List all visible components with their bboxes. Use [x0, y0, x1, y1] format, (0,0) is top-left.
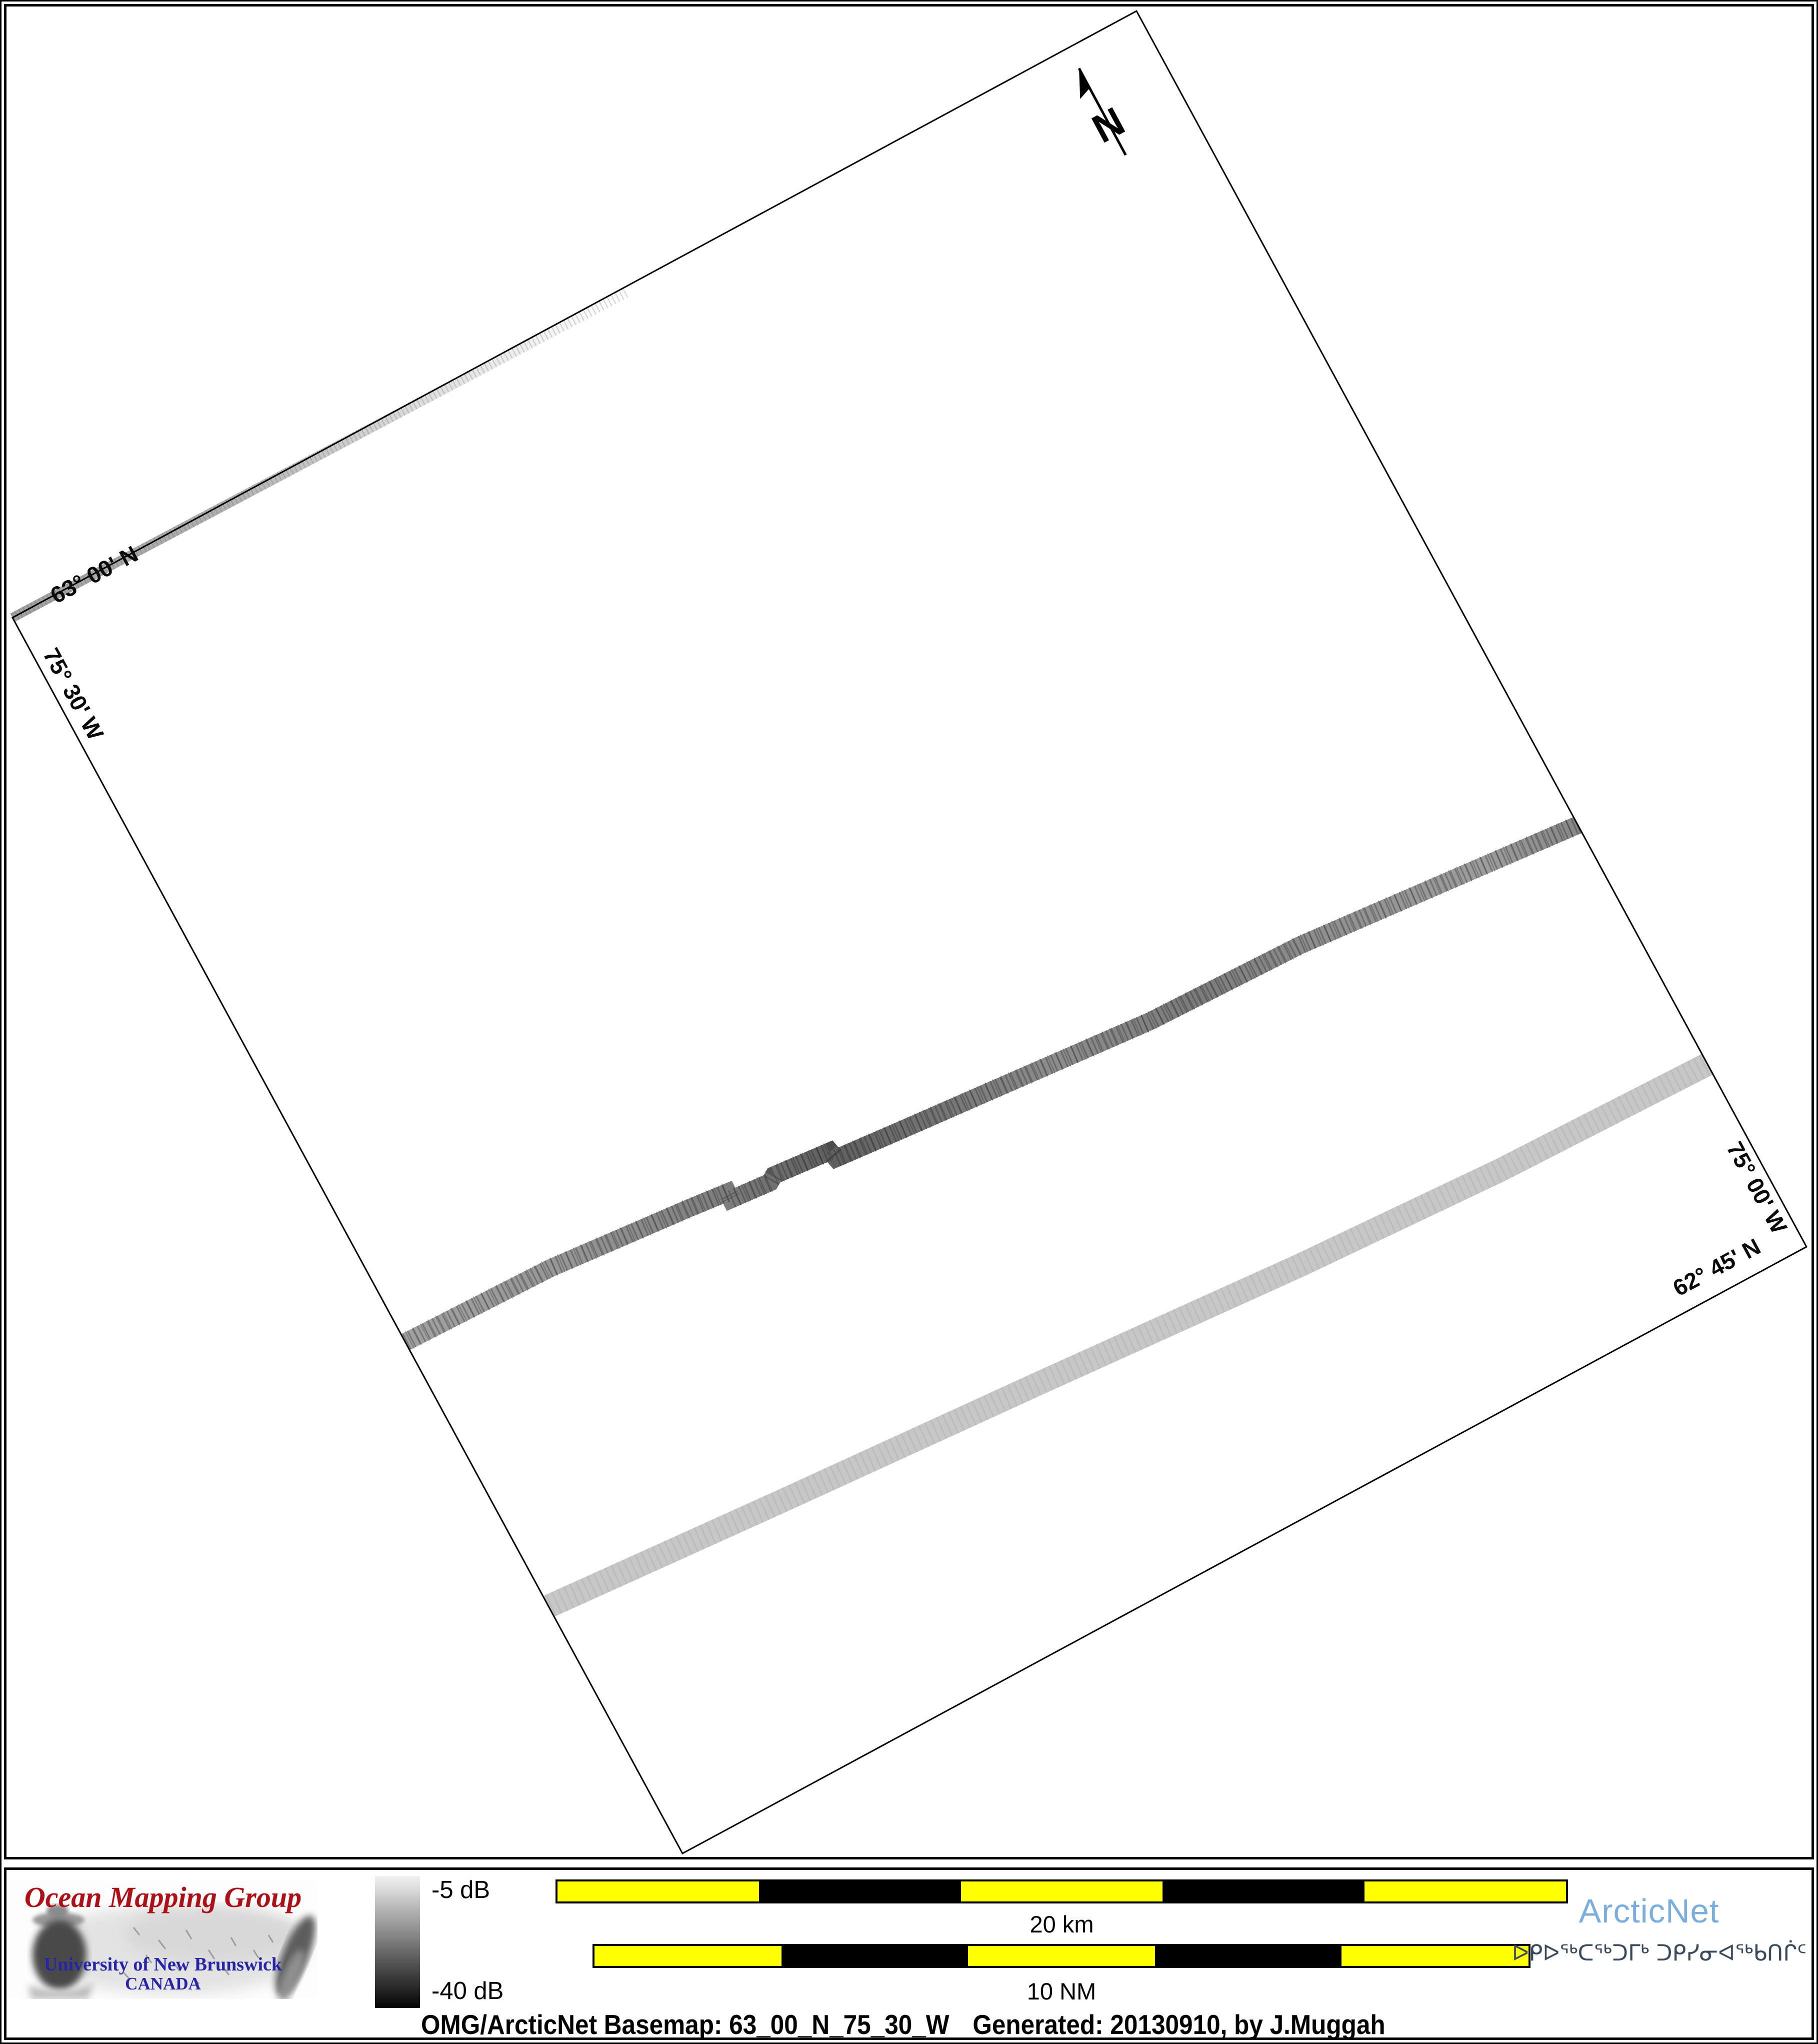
arcticnet-syllabics: ᐅᑭᐅᖅᑕᖅᑐᒥᒃ ᑐᑭᓯᓂᐊᖅᑲᑎᒌᑦ — [1512, 1941, 1806, 1966]
colorbar-top-label: -5 dB — [431, 1877, 490, 1903]
graticule-label-right-longitude: 75° 00' W — [1721, 1137, 1792, 1238]
dark-sonar-swath — [386, 795, 1646, 1352]
scalebar-km — [555, 1879, 1568, 1903]
graticule-label-top-latitude: 63° 00' N — [46, 541, 142, 609]
map-canvas: N 63° 00' N 75° 30' W 75° 00' W 62° 45' … — [6, 7, 1811, 1857]
map-panel: N 63° 00' N 75° 30' W 75° 00' W 62° 45' … — [4, 4, 1814, 1859]
scalebar-segment — [759, 1881, 960, 1901]
graticule-label-bottom-latitude: 62° 45' N — [1668, 1233, 1764, 1301]
map-neatline — [12, 11, 1806, 1853]
omg-title: Ocean Mapping Group — [8, 1883, 317, 1912]
omg-subtitle: University of New Brunswick — [8, 1955, 317, 1974]
north-arrow-label: N — [1085, 99, 1131, 152]
omg-logo: Ocean Mapping Group University of New Br… — [8, 1880, 317, 1999]
scalebar-segment — [781, 1946, 968, 1966]
scalebar-segment — [1341, 1946, 1528, 1966]
scalebar-segment — [1162, 1881, 1364, 1901]
caption-generated: Generated: 20130910, by J.Muggah — [972, 2009, 1385, 2040]
scalebar-segment — [594, 1946, 781, 1966]
scalebar-nm — [592, 1944, 1530, 1968]
scalebar-nm-label: 10 NM — [592, 1979, 1530, 2004]
north-arrow-icon: N — [1065, 62, 1137, 163]
caption-basemap-id: OMG/ArcticNet Basemap: 63_00_N_75_30_W — [421, 2009, 949, 2040]
scalebar-km-label: 20 km — [555, 1912, 1568, 1937]
light-sonar-swath — [526, 1044, 1746, 1616]
backscatter-colorbar — [375, 1876, 420, 2008]
scalebar-segment — [557, 1881, 759, 1901]
colorbar-bottom-label: -40 dB — [431, 1978, 503, 2004]
omg-country: CANADA — [8, 1975, 317, 1992]
scalebar-segment — [1155, 1946, 1342, 1966]
scalebar-segment — [968, 1946, 1155, 1966]
basemap-caption: OMG/ArcticNet Basemap: 63_00_N_75_30_WGe… — [421, 2011, 1385, 2038]
arcticnet-logo: ArcticNet — [1531, 1894, 1766, 1929]
basemap-sheet: N 63° 00' N 75° 30' W 75° 00' W 62° 45' … — [0, 0, 1818, 2044]
scalebar-segment — [961, 1881, 1162, 1901]
legend-panel: Ocean Mapping Group University of New Br… — [4, 1867, 1814, 2040]
